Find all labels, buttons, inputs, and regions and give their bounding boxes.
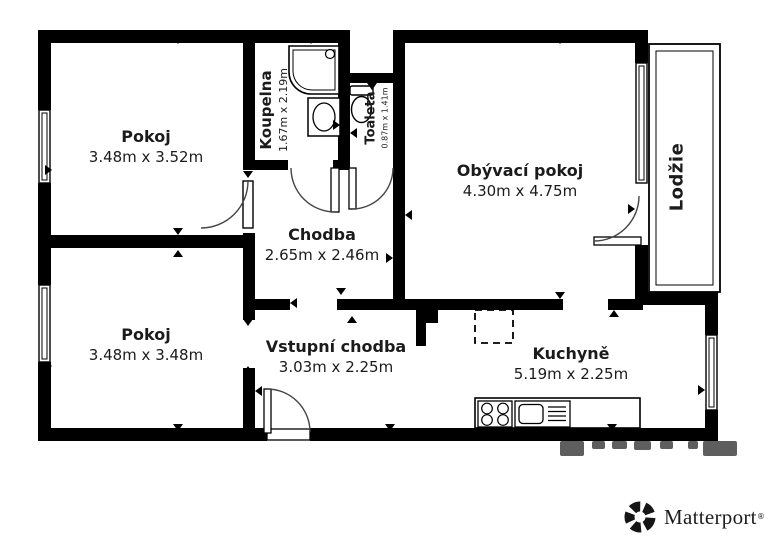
room-dims: 3.48m x 3.48m — [89, 346, 203, 366]
floor-plan-drawing — [0, 0, 768, 543]
room-dims: 3.03m x 2.25m — [266, 358, 406, 378]
wall — [416, 310, 426, 346]
washbasin-bowl — [313, 103, 335, 131]
watermark-fragment — [592, 441, 605, 449]
room-label-obyvaci-pokoj: Obývací pokoj 4.30m x 4.75m — [457, 161, 583, 201]
room-dims: 4.30m x 4.75m — [457, 182, 583, 202]
wall — [337, 299, 563, 310]
tick-arrow — [243, 319, 253, 326]
room-dims: 3.48m x 3.52m — [89, 148, 203, 168]
wall — [705, 305, 718, 335]
wall — [350, 73, 393, 83]
tick-arrow — [555, 292, 565, 299]
room-label-kuchyne: Kuchyně 5.19m x 2.25m — [514, 344, 628, 384]
room-name: Lodžie — [665, 143, 688, 212]
door-arc — [352, 168, 393, 209]
wall — [393, 30, 648, 43]
sink-icon — [519, 405, 543, 424]
room-label-chodba: Chodba 2.65m x 2.46m — [265, 225, 379, 265]
watermark-fragment — [560, 441, 584, 456]
room-name: Vstupní chodba — [266, 337, 406, 358]
door-arc — [291, 168, 335, 212]
matterport-logo: Matterport® — [623, 500, 765, 534]
bathroom-fixtures — [289, 46, 373, 136]
wall — [38, 43, 51, 110]
room-label-vstupni-chodba: Vstupní chodba 3.03m x 2.25m — [266, 337, 406, 377]
window — [42, 288, 47, 359]
tick-arrow — [628, 204, 635, 214]
wall — [38, 183, 51, 285]
tick-arrow — [609, 310, 619, 317]
watermark-fragment — [612, 441, 627, 449]
tick-arrow — [290, 298, 297, 308]
room-dims: 1.67m x 2.19m — [277, 68, 291, 152]
room-dims: 2.65m x 2.46m — [265, 246, 379, 266]
room-dims: 0.87m x 1.41m — [380, 87, 390, 148]
room-name: Pokoj — [89, 127, 203, 148]
tick-arrow — [336, 288, 346, 295]
wall — [635, 43, 648, 63]
tick-arrow — [347, 316, 357, 323]
room-label-toaleta: Toaleta 0.87m x 1.41m — [363, 87, 390, 148]
window — [639, 66, 644, 180]
tick-arrow — [405, 210, 412, 220]
room-name: Kuchyně — [514, 344, 628, 365]
entrance-door-threshold — [267, 429, 310, 440]
tick-arrow — [243, 171, 253, 178]
room-dims: 5.19m x 2.25m — [514, 365, 628, 385]
door-arc — [201, 181, 248, 228]
trademark-mark: ® — [757, 513, 765, 521]
tick-arrow — [350, 128, 357, 138]
tick-arrow — [255, 386, 262, 396]
wall — [393, 43, 405, 309]
matterport-logo-text: Matterport — [664, 505, 757, 530]
tick-arrow — [698, 385, 705, 395]
door-arc — [594, 196, 639, 241]
wall — [38, 428, 267, 441]
floor-plan: Pokoj 3.48m x 3.52m Koupelna 1.67m x 2.1… — [0, 0, 768, 543]
room-name: Chodba — [265, 225, 379, 246]
wall — [310, 428, 718, 441]
watermark-fragment — [703, 441, 737, 456]
room-name: Obývací pokoj — [457, 161, 583, 182]
wall — [705, 410, 718, 428]
tick-arrow — [173, 228, 183, 235]
wall — [643, 292, 718, 305]
room-label-koupelna: Koupelna 1.67m x 2.19m — [257, 68, 291, 152]
door-arc — [267, 389, 310, 432]
room-name: Pokoj — [89, 325, 203, 346]
watermark-fragment — [634, 441, 651, 450]
watermark-fragment — [660, 441, 673, 449]
door-leaf — [349, 168, 356, 209]
room-label-pokoj-top: Pokoj 3.48m x 3.52m — [89, 127, 203, 167]
room-label-pokoj-bottom: Pokoj 3.48m x 3.48m — [89, 325, 203, 365]
room-name: Toaleta — [363, 87, 380, 148]
watermark — [560, 441, 737, 456]
door-leaf — [331, 168, 339, 212]
tick-arrow — [173, 250, 183, 257]
door-leaf — [264, 389, 271, 433]
shower-drain-icon — [326, 50, 335, 59]
wall — [243, 368, 255, 428]
wall — [243, 43, 255, 170]
room-label-lodzie: Lodžie — [665, 143, 688, 212]
wall — [608, 299, 643, 310]
wall — [255, 299, 290, 310]
room-name: Koupelna — [257, 68, 277, 152]
wall — [38, 30, 350, 43]
watermark-fragment — [688, 441, 698, 449]
wall — [255, 160, 288, 170]
wall — [38, 235, 255, 248]
matterport-logo-icon — [623, 500, 657, 534]
fridge-placeholder — [475, 310, 513, 343]
window — [709, 338, 714, 407]
tick-arrow — [386, 253, 393, 263]
